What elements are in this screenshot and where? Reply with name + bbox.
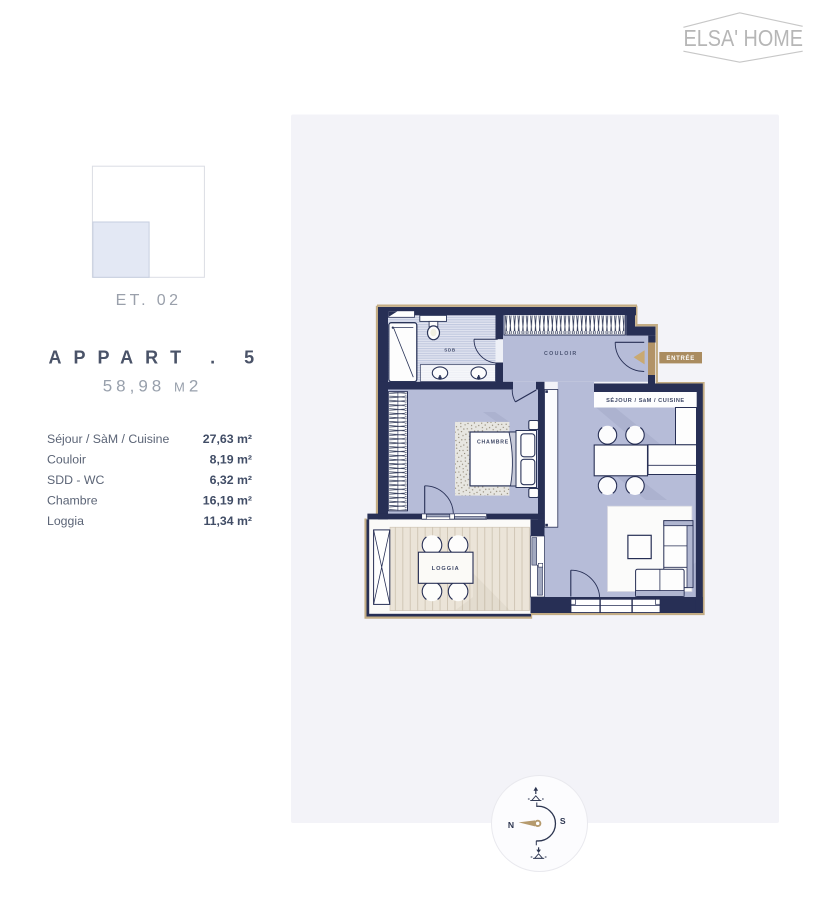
svg-text:COULOIR: COULOIR [544,351,578,357]
svg-text:27,63 m²: 27,63 m² [203,432,252,446]
svg-text:6,32 m²: 6,32 m² [210,473,252,487]
svg-text:ENTRÉE: ENTRÉE [666,354,695,362]
svg-text:11,34 m²: 11,34 m² [203,514,252,528]
svg-text:58,98 M2: 58,98 M2 [103,377,203,396]
svg-text:APPART . 5: APPART . 5 [49,348,267,368]
svg-text:ELSA' HOME: ELSA' HOME [684,25,804,51]
svg-text:ET. 02: ET. 02 [116,292,182,309]
svg-text:Chambre: Chambre [47,494,98,508]
svg-text:SDD - WC: SDD - WC [47,473,104,487]
svg-text:S: S [560,816,566,826]
svg-text:SDB: SDB [444,348,456,353]
svg-text:8,19 m²: 8,19 m² [210,453,252,467]
svg-text:N: N [508,820,514,830]
svg-text:Loggia: Loggia [47,514,84,528]
svg-text:CHAMBRE: CHAMBRE [477,439,509,445]
svg-text:SÉJOUR / SàM / CUISINE: SÉJOUR / SàM / CUISINE [606,396,685,404]
svg-text:LOGGIA: LOGGIA [432,566,460,572]
svg-text:Séjour / SàM / Cuisine: Séjour / SàM / Cuisine [47,432,169,446]
svg-text:Couloir: Couloir [47,453,86,467]
svg-text:16,19 m²: 16,19 m² [203,494,252,508]
